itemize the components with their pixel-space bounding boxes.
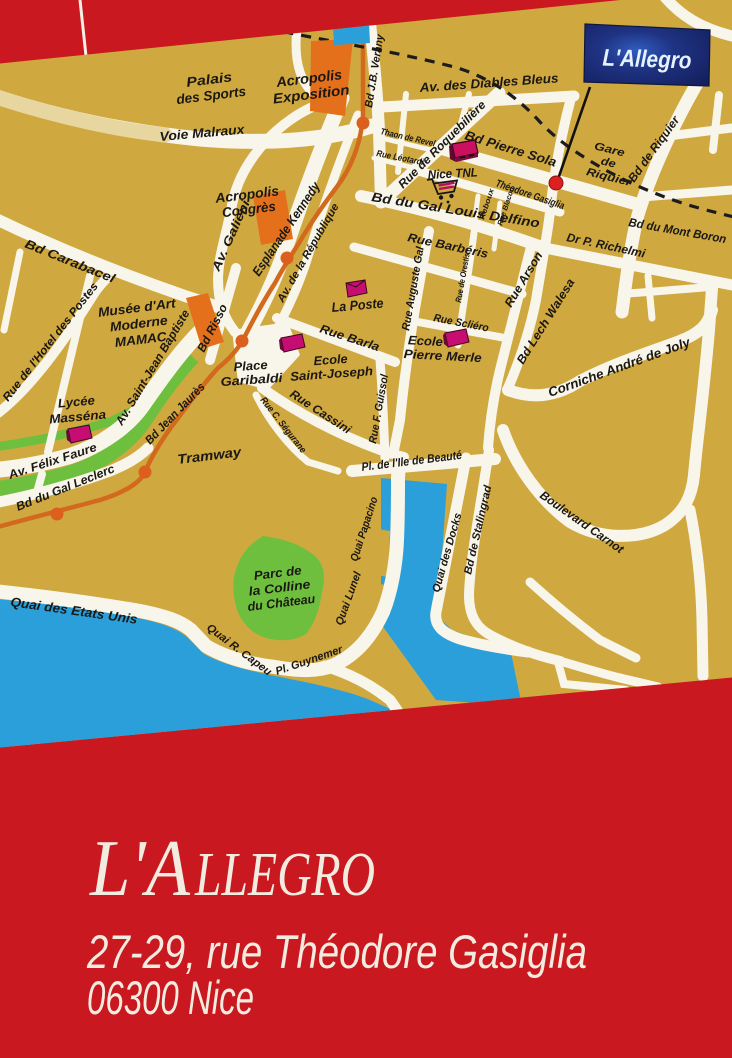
svg-text:L'Allegro: L'Allegro [602, 44, 692, 74]
svg-text:L'A: L'A [89, 825, 191, 913]
svg-text:Nice TNL: Nice TNL [427, 165, 478, 182]
svg-text:LLEGRO: LLEGRO [194, 841, 375, 909]
svg-text:06300 Nice: 06300 Nice [87, 971, 254, 1024]
